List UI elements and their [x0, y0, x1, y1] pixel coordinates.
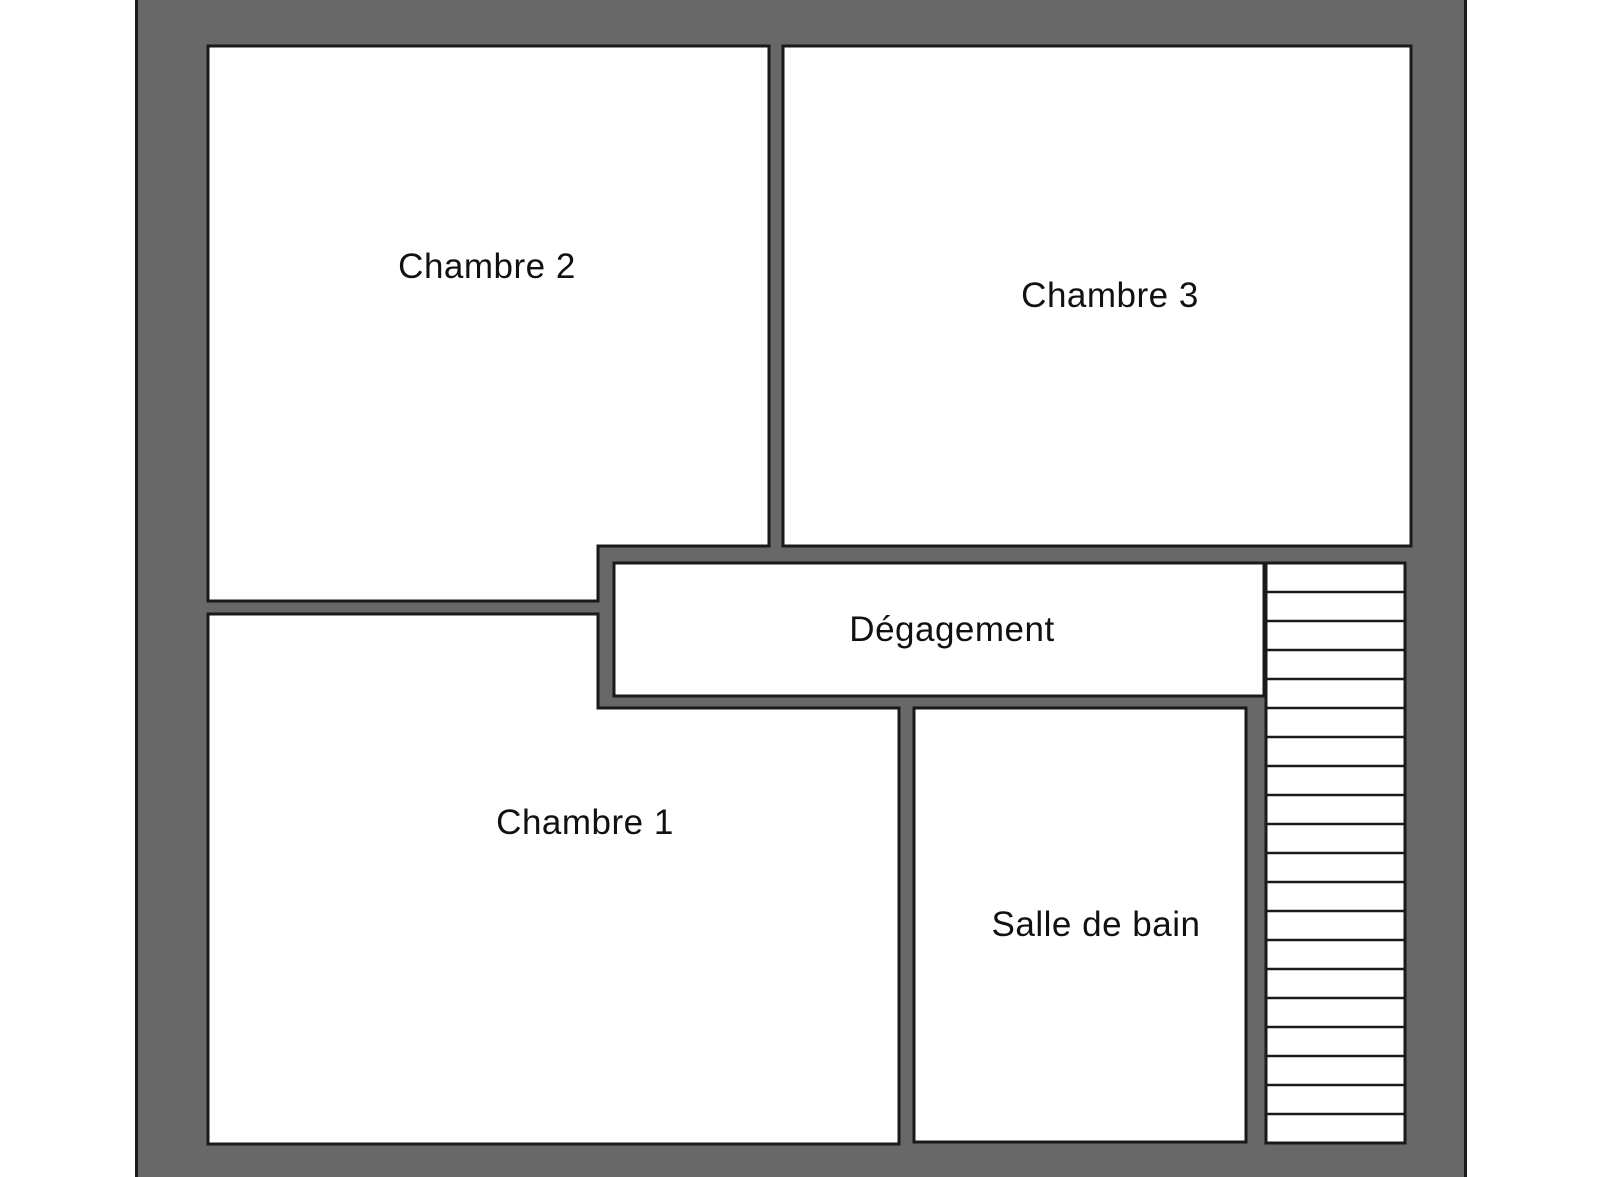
- floor-plan-drawing: [0, 0, 1600, 1177]
- room-label-chambre-2: Chambre 2: [398, 247, 576, 287]
- room-label-chambre-3: Chambre 3: [1021, 276, 1199, 316]
- room-label-chambre-1: Chambre 1: [496, 803, 674, 843]
- room-label-degagement: Dégagement: [849, 610, 1054, 650]
- room-label-salle-de-bain: Salle de bain: [992, 905, 1201, 945]
- room-chambre-2: [208, 46, 769, 601]
- floor-plan: Chambre 2 Chambre 3 Dégagement Chambre 1…: [0, 0, 1600, 1177]
